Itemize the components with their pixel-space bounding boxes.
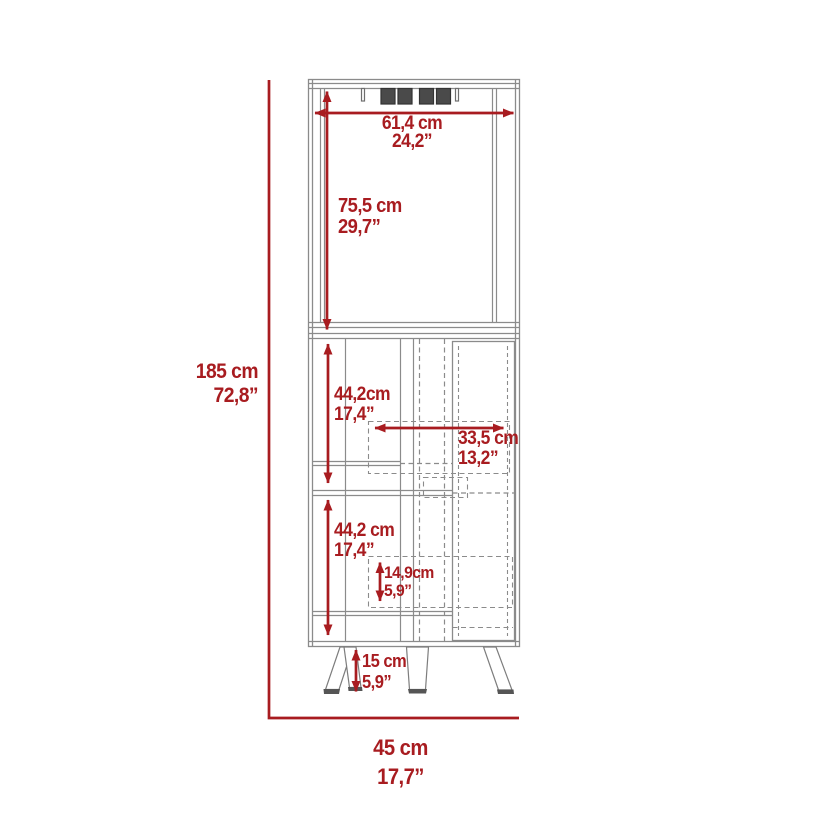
dim-top-width: 61,4 cm 24,2”: [357, 115, 467, 151]
dim-overall-depth: 45 cm 17,7”: [345, 733, 456, 791]
dim-interior-shelf-width: 33,5 cm 13,2”: [458, 429, 518, 469]
dim-interior-shelf-width-cm: 33,5 cm: [458, 429, 518, 449]
dim-shelf-clearance-cm: 14,9cm: [384, 564, 434, 582]
legs: [324, 647, 515, 694]
dim-lower-section-height-in: 17,4”: [334, 541, 394, 561]
leg-middle: [407, 647, 429, 690]
dim-leg-height-in: 5,9”: [362, 672, 406, 693]
dim-overall-depth-in: 17,7”: [345, 762, 456, 791]
dimension-lines: [269, 80, 519, 718]
dim-lower-section-height-cm: 44,2 cm: [334, 521, 394, 541]
dim-lower-section-height: 44,2 cm 17,4”: [334, 521, 394, 561]
stemware-rack: [362, 89, 459, 105]
overall-dimension-bracket: [269, 80, 519, 718]
dim-hutch-height-cm: 75,5 cm: [338, 196, 402, 217]
dim-top-width-in: 24,2”: [357, 133, 467, 151]
dim-hutch-height: 75,5 cm 29,7”: [338, 196, 402, 238]
dim-shelf-clearance-in: 5,9”: [384, 582, 434, 600]
dim-upper-section-height: 44,2cm 17,4”: [334, 385, 390, 425]
dim-leg-height-cm: 15 cm: [362, 651, 406, 672]
dim-overall-height-cm: 185 cm: [170, 360, 258, 384]
dim-overall-depth-cm: 45 cm: [345, 733, 456, 762]
dimension-diagram-canvas: 185 cm 72,8” 61,4 cm 24,2” 75,5 cm 29,7”…: [0, 0, 840, 840]
dim-upper-section-height-cm: 44,2cm: [334, 385, 390, 405]
leg-front-right: [484, 647, 513, 690]
dim-upper-section-height-in: 17,4”: [334, 405, 390, 425]
dim-leg-height: 15 cm 5,9”: [362, 651, 406, 693]
dim-overall-height: 185 cm 72,8”: [170, 360, 258, 408]
dim-interior-shelf-width-in: 13,2”: [458, 449, 518, 469]
leg-back-left: [344, 647, 361, 688]
dim-overall-height-in: 72,8”: [170, 384, 258, 408]
dim-hutch-height-in: 29,7”: [338, 217, 402, 238]
door-panel: [453, 342, 515, 641]
dim-shelf-clearance: 14,9cm 5,9”: [384, 564, 434, 600]
